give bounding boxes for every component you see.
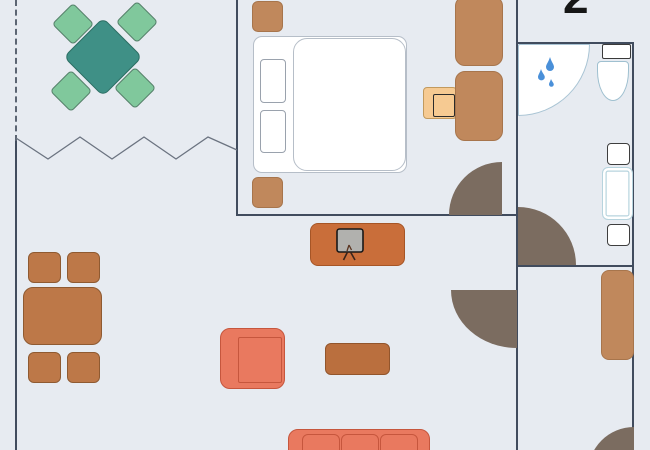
desk bbox=[455, 71, 503, 141]
sofa bbox=[288, 429, 430, 450]
desk-chair-seat-outline bbox=[433, 94, 455, 117]
nightstand bbox=[252, 177, 283, 208]
toilet-bowl bbox=[597, 61, 629, 101]
washbasin bbox=[602, 167, 633, 220]
dining-table bbox=[23, 287, 102, 345]
dining-chair bbox=[67, 252, 100, 283]
dining-chair bbox=[28, 252, 61, 283]
mattress bbox=[293, 38, 406, 171]
sofa-cushion bbox=[302, 434, 340, 450]
dining-chair bbox=[67, 352, 100, 383]
nightstand bbox=[252, 1, 283, 32]
wall-outer-right bbox=[632, 42, 634, 450]
hallway-wardrobe bbox=[601, 270, 634, 360]
desk-chair bbox=[423, 87, 457, 119]
living-room-door-swing bbox=[451, 290, 517, 348]
terrace-boundary-dashed-line bbox=[15, 0, 17, 141]
water-drops-icon bbox=[536, 57, 562, 97]
terrace-zigzag-boundary bbox=[16, 131, 237, 163]
wardrobe bbox=[455, 0, 503, 66]
pillow bbox=[260, 59, 286, 103]
vanity-shelf bbox=[607, 143, 630, 165]
pillow bbox=[260, 110, 286, 153]
bathroom-door-swing bbox=[518, 207, 576, 265]
armchair-seat-outline bbox=[238, 337, 282, 383]
wall-bathroom-bottom bbox=[518, 265, 634, 267]
unit-number-label: 2 bbox=[563, 0, 589, 20]
sofa-cushion bbox=[380, 434, 418, 450]
vanity-shelf bbox=[607, 224, 630, 246]
wall-left bbox=[15, 141, 17, 450]
armchair bbox=[220, 328, 285, 389]
tv-icon bbox=[336, 228, 364, 262]
entry-door-swing bbox=[588, 427, 634, 450]
apartment-floor-plan: 2 bbox=[0, 0, 650, 450]
wall-bedroom-left bbox=[236, 0, 238, 216]
dining-chair bbox=[28, 352, 61, 383]
sofa-cushion bbox=[341, 434, 379, 450]
bedroom-door-swing bbox=[449, 162, 502, 215]
toilet-tank bbox=[602, 44, 631, 59]
coffee-table bbox=[325, 343, 390, 375]
